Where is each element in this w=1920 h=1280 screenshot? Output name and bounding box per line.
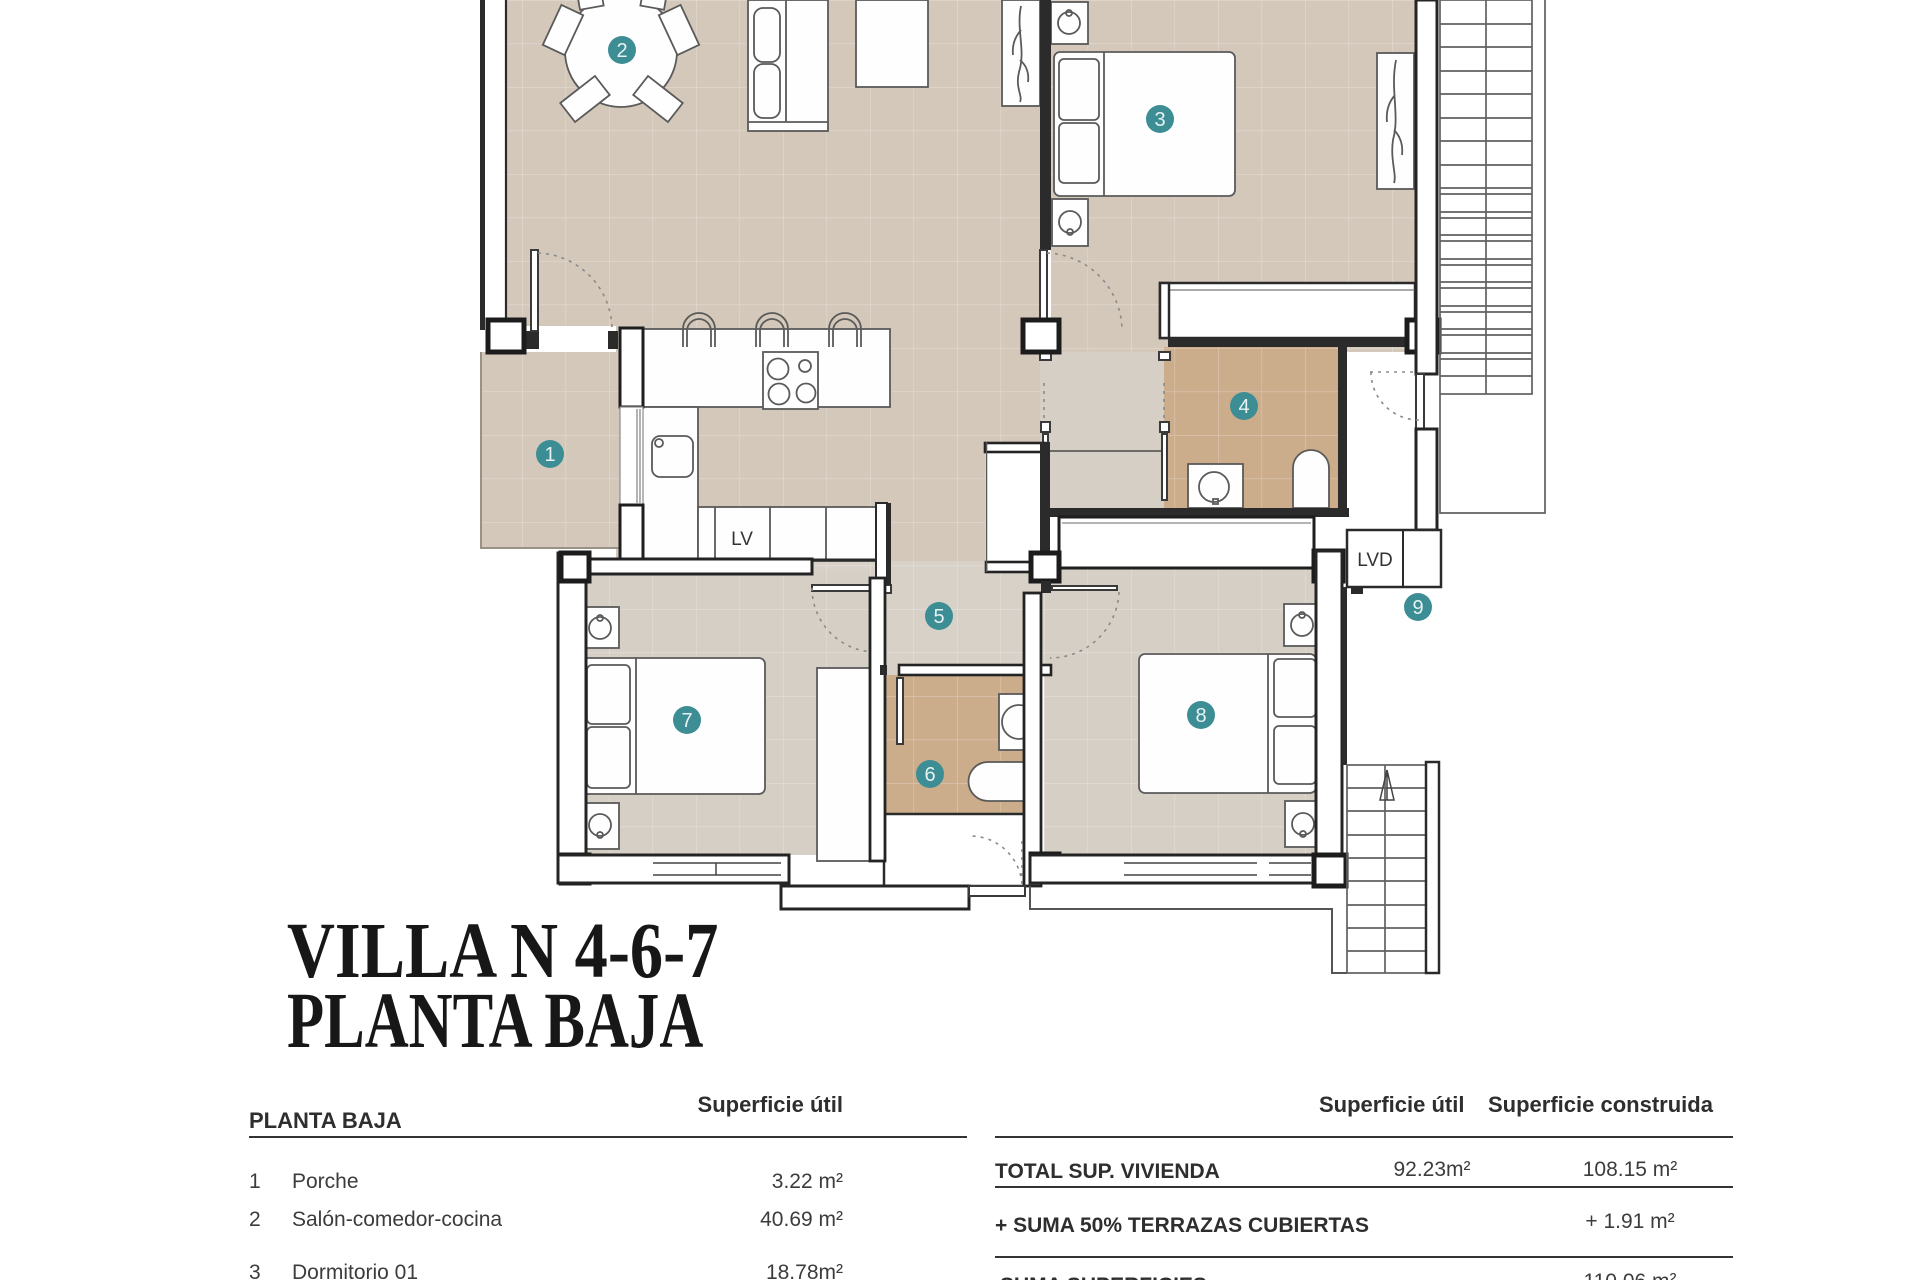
svg-text:3: 3 <box>1154 109 1165 131</box>
svg-text:9: 9 <box>1412 597 1423 619</box>
svg-text:4: 4 <box>1238 396 1249 418</box>
svg-text:LV: LV <box>731 529 753 550</box>
svg-text:5: 5 <box>933 606 944 628</box>
svg-text:7: 7 <box>681 710 692 732</box>
svg-text:2: 2 <box>616 40 627 62</box>
svg-text:LVD: LVD <box>1357 550 1393 571</box>
svg-text:8: 8 <box>1195 705 1206 727</box>
svg-text:6: 6 <box>924 764 935 786</box>
svg-text:1: 1 <box>544 444 555 466</box>
